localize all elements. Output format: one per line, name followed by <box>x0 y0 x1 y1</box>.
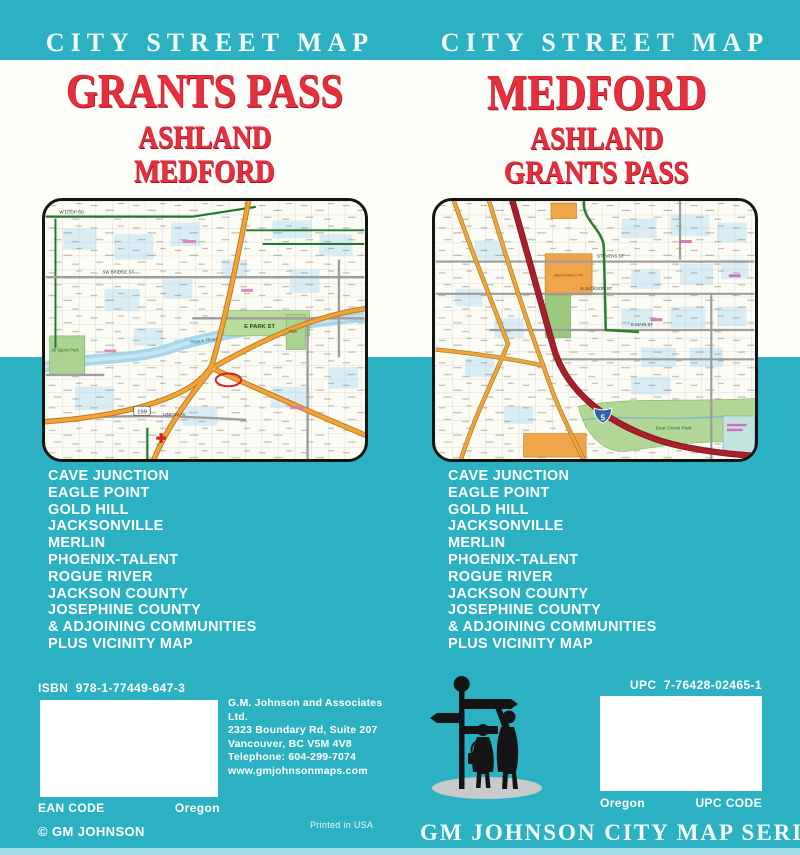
label-bridge-st: SW BRIDGE ST <box>102 269 134 274</box>
map-cover: CITY STREET MAP CITY STREET MAP GRANTS P… <box>0 0 800 855</box>
grants-pass-map-art: 199 W LOOP RD SW BRIDGE ST E PARK ST UNI… <box>45 201 365 459</box>
label-loop-rd: W LOOP RD <box>59 210 84 215</box>
upc-code-label: UPC CODE <box>695 796 762 810</box>
man-silhouette <box>494 703 518 789</box>
medford-map-art: 5 STEVENS ST N JACKSON ST E MAIN ST MEDF… <box>435 201 755 459</box>
list-item: EAGLE POINT <box>48 485 378 502</box>
label-main-st: E MAIN ST <box>631 322 653 327</box>
region-label-right: Oregon <box>600 796 645 810</box>
publisher-website: www.gmjohnsonmaps.com <box>228 765 403 779</box>
publisher-name: G.M. Johnson and Associates Ltd. <box>228 697 403 724</box>
city-street-map-header-right: CITY STREET MAP <box>425 26 785 60</box>
list-item: JACKSONVILLE <box>48 518 378 535</box>
isbn-value: 978-1-77449-647-3 <box>76 681 186 695</box>
upc-value: 7-76428-02465-1 <box>664 678 762 692</box>
bottom-edge-strip <box>0 848 800 855</box>
upc-label: UPC <box>630 678 657 692</box>
list-item: & ADJOINING COMMUNITIES <box>448 619 778 636</box>
right-title-line-2: ASHLAND <box>417 122 777 154</box>
map-thumbnail-medford: 5 STEVENS ST N JACKSON ST E MAIN ST MEDF… <box>432 198 758 462</box>
list-item: PHOENIX-TALENT <box>448 552 778 569</box>
list-item: MERLIN <box>48 535 378 552</box>
list-item: ROGUE RIVER <box>448 569 778 586</box>
label-park-st: E PARK ST <box>244 324 275 330</box>
region-label-left: Oregon <box>175 801 220 815</box>
series-title: GM JOHNSON CITY MAP SERIES <box>420 820 780 846</box>
list-item: JACKSON COUNTY <box>448 586 778 603</box>
city-list-right: CAVE JUNCTION EAGLE POINT GOLD HILL JACK… <box>448 468 778 653</box>
list-item: JACKSONVILLE <box>448 518 778 535</box>
isbn-line: ISBN 978-1-77449-647-3 <box>38 681 185 695</box>
list-item: CAVE JUNCTION <box>48 468 378 485</box>
label-bear-creek-park: Bear Creek Park <box>656 426 693 432</box>
left-title-line-1: GRANTS PASS <box>25 68 385 116</box>
list-item: CAVE JUNCTION <box>448 468 778 485</box>
publisher-address-1: 2323 Boundary Rd, Suite 207 <box>228 724 403 738</box>
list-item: PHOENIX-TALENT <box>48 552 378 569</box>
list-item: GOLD HILL <box>48 502 378 519</box>
list-item: PLUS VICINITY MAP <box>448 636 778 653</box>
left-title-line-3: MEDFORD <box>25 155 385 187</box>
label-jackson-st: N JACKSON ST <box>580 286 612 291</box>
upc-caption-row: Oregon UPC CODE <box>600 796 762 810</box>
printed-in-usa: Printed in USA <box>310 820 373 830</box>
upc-barcode-box <box>600 696 762 791</box>
label-union-av: UNION AV <box>163 412 187 418</box>
publisher-phone: Telephone: 604-299-7074 <box>228 751 403 765</box>
list-item: MERLIN <box>448 535 778 552</box>
map-thumbnail-grants-pass: 199 W LOOP RD SW BRIDGE ST E PARK ST UNI… <box>42 198 368 462</box>
list-item: PLUS VICINITY MAP <box>48 636 378 653</box>
upc-line: UPC 7-76428-02465-1 <box>560 678 762 692</box>
signpost-people-logo-icon <box>425 675 560 805</box>
isbn-label: ISBN <box>38 681 68 695</box>
copyright-line: © GM JOHNSON <box>38 824 145 839</box>
svg-text:5: 5 <box>601 413 606 422</box>
label-park: Park <box>289 329 298 334</box>
list-item: ROGUE RIVER <box>48 569 378 586</box>
label-medford-ctr: MEDFORD CTR <box>554 272 583 277</box>
left-title-line-2: ASHLAND <box>25 121 385 153</box>
publisher-block: G.M. Johnson and Associates Ltd. 2323 Bo… <box>228 697 403 778</box>
ean-caption-row: EAN CODE Oregon <box>38 801 220 815</box>
hospital-block <box>723 416 754 453</box>
svg-text:199: 199 <box>137 410 147 416</box>
list-item: JOSEPHINE COUNTY <box>48 602 378 619</box>
right-title-line-1: MEDFORD <box>417 67 777 117</box>
label-sports-park: All Sports Park <box>52 348 80 353</box>
right-title-line-3: GRANTS PASS <box>417 156 777 188</box>
publisher-address-2: Vancouver, BC V5M 4V8 <box>228 738 403 752</box>
ean-barcode-box <box>40 700 218 797</box>
city-list-left: CAVE JUNCTION EAGLE POINT GOLD HILL JACK… <box>48 468 378 653</box>
ean-code-label: EAN CODE <box>38 801 105 815</box>
city-street-map-header-left: CITY STREET MAP <box>30 26 390 60</box>
list-item: GOLD HILL <box>448 502 778 519</box>
list-item: & ADJOINING COMMUNITIES <box>48 619 378 636</box>
list-item: JACKSON COUNTY <box>48 586 378 603</box>
list-item: JOSEPHINE COUNTY <box>448 602 778 619</box>
label-stevens-st: STEVENS ST <box>597 254 625 259</box>
route-199-shield: 199 <box>134 406 151 415</box>
list-item: EAGLE POINT <box>448 485 778 502</box>
